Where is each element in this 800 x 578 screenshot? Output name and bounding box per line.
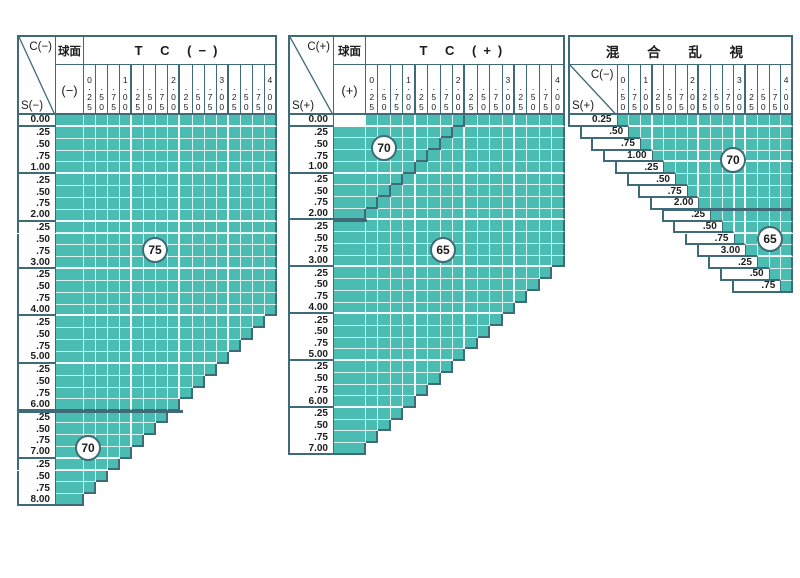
row-label: .75 [685, 234, 735, 246]
zone-divider-line [664, 208, 794, 211]
grid-cell [180, 376, 192, 388]
grid-cell [180, 115, 192, 127]
grid-cell [144, 293, 156, 305]
grid-cell [490, 291, 502, 303]
row-label: 2.00 [288, 209, 334, 221]
sphere-cell [56, 269, 84, 281]
grid-cell [120, 328, 132, 340]
grid-cell [403, 232, 415, 244]
sphere-cell [56, 471, 84, 483]
grid-cell [515, 185, 527, 197]
grid-cell [217, 293, 229, 305]
grid-cell [253, 115, 265, 127]
grid-cell [515, 138, 527, 150]
grid-cell [515, 127, 527, 139]
grid-cell [746, 139, 758, 151]
grid-cell [416, 338, 428, 350]
grid-cell [490, 127, 502, 139]
row-label: 7.00 [288, 443, 334, 455]
col-header-char: 5 [208, 102, 213, 112]
grid-cell [688, 151, 700, 163]
col-header-char: 5 [632, 102, 637, 112]
grid-cell [540, 256, 552, 268]
grid-cell [403, 338, 415, 350]
grid-cell [781, 269, 793, 281]
grid-cell [366, 209, 378, 221]
grid-cell [540, 209, 552, 221]
grid-cell [503, 197, 515, 209]
row-label: .50 [627, 174, 677, 186]
sphere-cell [334, 150, 366, 162]
grid-cell [416, 220, 428, 232]
grid-cell [144, 364, 156, 376]
row-label: .75 [17, 198, 56, 210]
col-header-char: 0 [244, 102, 249, 112]
grid-cell [552, 127, 564, 139]
grid-cell [527, 162, 539, 174]
grid-cell [168, 257, 180, 269]
grid-cell [366, 174, 378, 186]
grid-cell [144, 127, 156, 139]
grid-cell [144, 411, 156, 423]
grid-cell [180, 234, 192, 246]
grid-cell [108, 186, 120, 198]
diameter-circle-badge: 70 [75, 435, 101, 461]
grid-cell [391, 197, 403, 209]
grid-cell [723, 222, 735, 234]
grid-cell [108, 435, 120, 447]
grid-cell [180, 352, 192, 364]
col-header: ·75 [770, 65, 782, 115]
grid-cell [403, 209, 415, 221]
corner-col-axis-label: C(−) [29, 41, 52, 53]
grid-cell [253, 316, 265, 328]
grid-cell [108, 245, 120, 257]
grid-cell [229, 174, 241, 186]
grid-cell [378, 115, 390, 127]
diameter-circle-badge: 70 [371, 135, 397, 161]
row-label: .75 [732, 281, 782, 293]
grid-cell [205, 174, 217, 186]
col-header-char: 0 [171, 102, 176, 112]
grid-cell [108, 162, 120, 174]
grid-cell [108, 198, 120, 210]
grid-cell [540, 185, 552, 197]
grid-cell [229, 328, 241, 340]
grid-cell [515, 115, 527, 127]
grid-cell [84, 269, 96, 281]
grid-cell [205, 186, 217, 198]
grid-cell [428, 314, 440, 326]
grid-cell [653, 151, 665, 163]
grid-cell [96, 423, 108, 435]
grid-cell [723, 115, 735, 127]
grid-cell [96, 222, 108, 234]
grid-cell [441, 291, 453, 303]
col-header-char: 5 [99, 92, 104, 102]
grid-cell [241, 245, 253, 257]
grid-cell [108, 222, 120, 234]
grid-cell [453, 220, 465, 232]
col-header-char: 0 [456, 92, 461, 102]
grid-cell [96, 305, 108, 317]
grid-cell [229, 257, 241, 269]
row-label: .75 [17, 245, 56, 257]
grid-cell [132, 210, 144, 222]
sphere-cell [56, 305, 84, 317]
grid-cell [84, 340, 96, 352]
grid-cell [490, 197, 502, 209]
col-header: ·50 [664, 65, 676, 115]
grid-cell [156, 364, 168, 376]
grid-cell [132, 115, 144, 127]
grid-cell [193, 222, 205, 234]
grid-cell [781, 210, 793, 222]
grid-cell [193, 186, 205, 198]
grid-cell [205, 281, 217, 293]
grid-cell [205, 316, 217, 328]
grid-cell [503, 174, 515, 186]
grid-cell [366, 326, 378, 338]
grid-cell [676, 139, 688, 151]
grid-cell [229, 151, 241, 163]
grid-cell [132, 364, 144, 376]
row-label: .50 [17, 328, 56, 340]
grid-cell [180, 210, 192, 222]
grid-cell [746, 186, 758, 198]
grid-cell [132, 388, 144, 400]
grid-cell [108, 174, 120, 186]
grid-cell [241, 305, 253, 317]
grid-cell [478, 138, 490, 150]
grid-cell [416, 162, 428, 174]
grid-cell [490, 220, 502, 232]
grid-cell [465, 127, 477, 139]
grid-cell [781, 162, 793, 174]
grid-cell [503, 232, 515, 244]
grid-cell [84, 423, 96, 435]
sphere-cell [56, 352, 84, 364]
grid-cell [503, 185, 515, 197]
corner-row-axis-label: S(+) [292, 100, 314, 112]
grid-cell [108, 459, 120, 471]
grid-cell [664, 127, 676, 139]
grid-cell [84, 257, 96, 269]
grid-cell [653, 115, 665, 127]
col-header-char: 7 [444, 92, 449, 102]
grid-cell [108, 376, 120, 388]
grid-cell [711, 115, 723, 127]
row-label: .50 [288, 138, 334, 150]
grid-cell [366, 373, 378, 385]
grid-cell [168, 115, 180, 127]
sphere-cell [56, 316, 84, 328]
row-label: .50 [288, 279, 334, 291]
grid-cell [503, 127, 515, 139]
grid-cell [96, 210, 108, 222]
grid-cell [428, 197, 440, 209]
grid-cell [688, 139, 700, 151]
grid-cell [441, 197, 453, 209]
grid-cell [193, 364, 205, 376]
grid-cell [503, 115, 515, 127]
sphere-cell [56, 139, 84, 151]
grid-cell [723, 186, 735, 198]
grid-cell [441, 150, 453, 162]
grid-cell [465, 150, 477, 162]
sphere-cell [56, 411, 84, 423]
col-header-char: 7 [543, 92, 548, 102]
grid-cell [378, 385, 390, 397]
grid-cell [193, 151, 205, 163]
grid-cell [156, 340, 168, 352]
col-header-char: 5 [431, 92, 436, 102]
sphere-cell [334, 220, 366, 232]
grid-cell [366, 115, 378, 127]
row-label: .75 [17, 293, 56, 305]
grid-cell [205, 328, 217, 340]
grid-cell [84, 471, 96, 483]
grid-cell [180, 198, 192, 210]
grid-cell [391, 361, 403, 373]
row-label: .25 [288, 314, 334, 326]
grid-cell [453, 174, 465, 186]
grid-cell [758, 115, 770, 127]
grid-cell [168, 162, 180, 174]
grid-cell [441, 326, 453, 338]
grid-cell [193, 174, 205, 186]
grid-cell [217, 305, 229, 317]
grid-cell [168, 127, 180, 139]
grid-cell [241, 269, 253, 281]
col-header: ·75 [441, 65, 453, 115]
grid-cell [265, 198, 277, 210]
col-header-char: 0 [690, 102, 695, 112]
zone-divider-line [334, 219, 367, 222]
grid-cell [366, 256, 378, 268]
grid-cell [217, 340, 229, 352]
grid-cell [378, 232, 390, 244]
grid-cell [453, 185, 465, 197]
grid-cell [416, 256, 428, 268]
col-header: ·75 [391, 65, 403, 115]
grid-cell [378, 408, 390, 420]
grid-cell [144, 186, 156, 198]
grid-cell [180, 364, 192, 376]
grid-cell [84, 162, 96, 174]
grid-cell [453, 127, 465, 139]
grid-cell [416, 185, 428, 197]
grid-cell [515, 197, 527, 209]
sphere-cell [56, 459, 84, 471]
grid-cell [168, 376, 180, 388]
grid-cell [120, 174, 132, 186]
grid-cell [120, 423, 132, 435]
grid-cell [378, 338, 390, 350]
grid-cell [366, 279, 378, 291]
grid-cell [229, 210, 241, 222]
grid-cell [378, 162, 390, 174]
grid-cell [403, 220, 415, 232]
grid-cell [490, 244, 502, 256]
grid-cell [217, 245, 229, 257]
grid-cell [478, 150, 490, 162]
grid-cell [378, 185, 390, 197]
grid-cell [503, 303, 515, 315]
row-label: .25 [17, 411, 56, 423]
row-label: .25 [17, 127, 56, 139]
col-header-char: 0 [690, 92, 695, 102]
grid-cell [403, 373, 415, 385]
grid-cell [378, 174, 390, 186]
row-label: 4.00 [288, 303, 334, 315]
sphere-cell [334, 174, 366, 186]
grid-cell [465, 303, 477, 315]
grid-cell [217, 127, 229, 139]
col-header: ·75 [490, 65, 502, 115]
grid-cell [253, 186, 265, 198]
grid-cell [156, 293, 168, 305]
grid-cell [428, 115, 440, 127]
grid-cell [540, 162, 552, 174]
grid-cell [527, 150, 539, 162]
grid-cell [416, 138, 428, 150]
col-header: ·25 [180, 65, 192, 115]
grid-cell [193, 340, 205, 352]
grid-cell [428, 267, 440, 279]
grid-cell [96, 151, 108, 163]
sphere-cell [334, 373, 366, 385]
grid-cell [205, 210, 217, 222]
grid-cell [120, 269, 132, 281]
grid-cell [664, 162, 676, 174]
grid-cell [527, 279, 539, 291]
grid-cell [132, 293, 144, 305]
grid-cell [108, 316, 120, 328]
sphere-cell [334, 361, 366, 373]
grid-cell [441, 279, 453, 291]
row-label: .50 [288, 373, 334, 385]
grid-cell [503, 209, 515, 221]
grid-cell [180, 340, 192, 352]
grid-cell [629, 115, 641, 127]
grid-cell [120, 305, 132, 317]
sphere-cell [334, 115, 366, 127]
grid-cell [96, 411, 108, 423]
col-header-char: 5 [620, 92, 625, 102]
grid-cell [711, 210, 723, 222]
grid-cell [453, 279, 465, 291]
grid-cell [180, 245, 192, 257]
grid-cell [84, 482, 96, 494]
grid-cell [265, 127, 277, 139]
row-label: .25 [288, 408, 334, 420]
grid-cell [168, 222, 180, 234]
grid-cell [132, 411, 144, 423]
col-header-char: 7 [773, 92, 778, 102]
grid-cell [453, 209, 465, 221]
grid-cell [168, 234, 180, 246]
sphere-cell [56, 186, 84, 198]
grid-cell [540, 197, 552, 209]
grid-cell [253, 127, 265, 139]
grid-cell [96, 234, 108, 246]
row-label: .75 [17, 388, 56, 400]
grid-cell [527, 244, 539, 256]
col-header: 4·00 [552, 65, 564, 115]
sphere-cell [56, 423, 84, 435]
row-label: .75 [288, 291, 334, 303]
col-header: ·75 [205, 65, 217, 115]
grid-cell [144, 305, 156, 317]
col-header-char: 5 [726, 102, 731, 112]
grid-cell [478, 256, 490, 268]
grid-cell [205, 269, 217, 281]
grid-cell [180, 305, 192, 317]
grid-cell [168, 316, 180, 328]
grid-cell [108, 293, 120, 305]
grid-cell [265, 174, 277, 186]
grid-cell [229, 305, 241, 317]
grid-cell [168, 281, 180, 293]
grid-cell [490, 174, 502, 186]
col-header: ·75 [629, 65, 641, 115]
grid-cell [465, 256, 477, 268]
grid-cell [265, 245, 277, 257]
grid-cell [503, 291, 515, 303]
grid-cell [552, 244, 564, 256]
grid-cell [746, 127, 758, 139]
grid-cell [193, 328, 205, 340]
grid-cell [84, 352, 96, 364]
col-header: ·25 [653, 65, 665, 115]
grid-cell [265, 222, 277, 234]
grid-cell [391, 279, 403, 291]
grid-cell [96, 364, 108, 376]
col-header-char: 5 [382, 92, 387, 102]
col-header-char: 5 [256, 102, 261, 112]
grid-cell [478, 326, 490, 338]
grid-cell [144, 115, 156, 127]
grid-cell [366, 385, 378, 397]
grid-cell [391, 349, 403, 361]
grid-cell [746, 245, 758, 257]
col-header-char: 0 [737, 92, 742, 102]
col-header-char: 5 [244, 92, 249, 102]
grid-cell [527, 256, 539, 268]
row-label: .50 [17, 471, 56, 483]
grid-cell [527, 197, 539, 209]
row-label: .75 [288, 431, 334, 443]
grid-cell [108, 257, 120, 269]
grid-cell [120, 151, 132, 163]
grid-cell [478, 197, 490, 209]
col-header-char: 0 [123, 102, 128, 112]
grid-cell [120, 139, 132, 151]
grid-cell [120, 340, 132, 352]
grid-cell [465, 115, 477, 127]
grid-cell [180, 127, 192, 139]
grid-cell [229, 340, 241, 352]
row-label: .50 [17, 423, 56, 435]
grid-cell [453, 256, 465, 268]
grid-cell [453, 291, 465, 303]
grid-cell [758, 139, 770, 151]
col-header: ·50 [758, 65, 770, 115]
grid-cell [144, 210, 156, 222]
corner-cell: C(−)S(−) [17, 35, 56, 115]
row-label: 1.00 [603, 151, 653, 163]
